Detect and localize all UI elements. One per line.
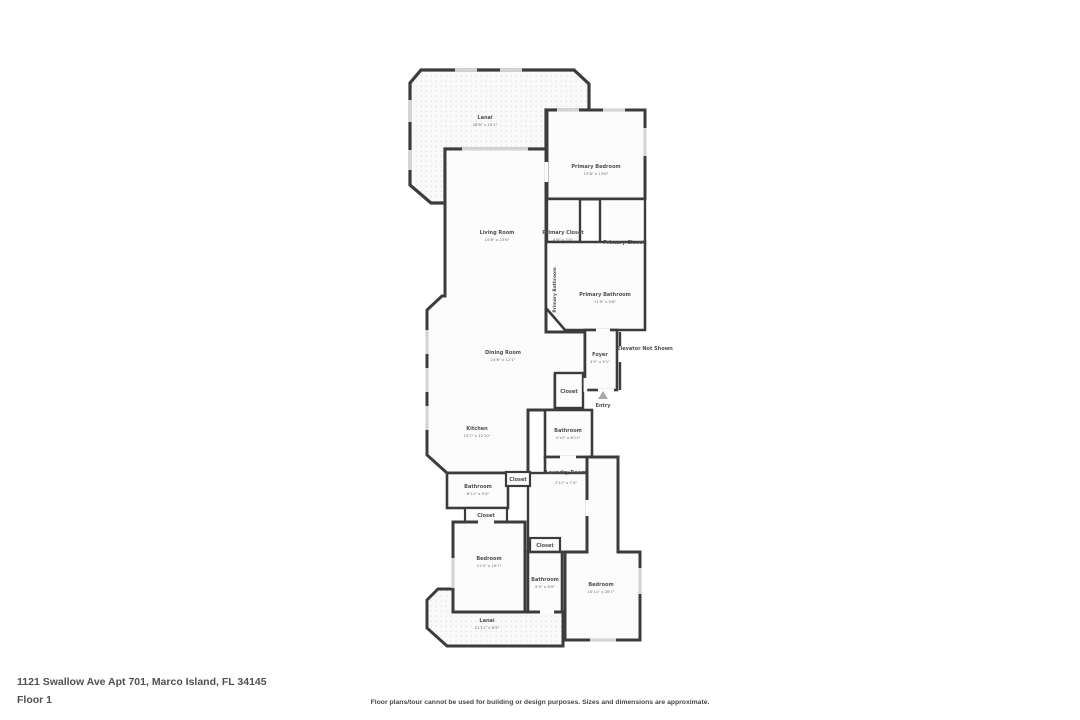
room-primary-closet-right: [600, 199, 645, 243]
dims-laundry: 2'11" x 7'4": [555, 480, 578, 485]
label-entry: Entry: [595, 403, 611, 409]
dims-primary-bedroom: 15'8" x 13'6": [584, 171, 609, 176]
label-lanai-bottom: Lanai: [479, 618, 494, 624]
dims-living-room: 15'8" x 23'6": [485, 237, 510, 242]
label-elevator-note: Elevator Not Shown: [617, 346, 673, 352]
label-bathroom-hall: Bathroom: [554, 428, 582, 434]
label-bathroom-guest: Bathroom: [464, 484, 492, 490]
dims-primary-closet-left: 4'6" x 7'0": [553, 237, 573, 242]
label-closet-c: Closet: [536, 543, 554, 549]
label-primary-closet-left: Primary Closet: [542, 230, 584, 236]
dims-foyer: 4'5" x 9'1": [590, 359, 610, 364]
dims-bathroom-guest: 8'11" x 5'4": [467, 491, 490, 496]
label-primary-bedroom: Primary Bedroom: [571, 164, 620, 170]
label-primary-bathroom-vertical: Primary Bathroom: [552, 267, 558, 313]
disclaimer-text: Floor plans/tour cannot be used for buil…: [0, 699, 1080, 706]
label-bathroom-2: Bathroom: [531, 577, 559, 583]
dims-lanai-bottom: 21'11" x 8'9": [475, 625, 500, 630]
label-foyer: Foyer: [592, 352, 608, 358]
label-lanai-top: Lanai: [477, 115, 492, 121]
dims-dining-room: 24'6" x 12'1": [491, 357, 516, 362]
floor-plan: Lanai 28'8" x 23'1" Primary Bedroom 15'8…: [0, 0, 1080, 720]
label-closet-b: Closet: [477, 513, 495, 519]
label-laundry: Laundry Room: [546, 470, 587, 476]
dims-bathroom-2: 5'0" x 8'9": [535, 584, 555, 589]
label-dining-room: Dining Room: [485, 350, 521, 356]
room-primary-bedroom: [547, 110, 645, 199]
dims-bedroom-1: 11'4" x 19'1": [477, 563, 502, 568]
label-primary-bathroom: Primary Bathroom: [579, 292, 631, 298]
dims-primary-bathroom: 11'9" x 9'8": [594, 299, 617, 304]
label-primary-closet-right: Primary Closet: [603, 240, 645, 246]
label-kitchen: Kitchen: [466, 426, 488, 432]
label-bedroom-2: Bedroom: [588, 582, 613, 588]
floor-plan-page: Lanai 28'8" x 23'1" Primary Bedroom 15'8…: [0, 0, 1080, 720]
label-bedroom-1: Bedroom: [476, 556, 501, 562]
room-primary-bathroom: [546, 242, 645, 330]
property-address: 1121 Swallow Ave Apt 701, Marco Island, …: [17, 676, 267, 688]
dims-lanai-top: 28'8" x 23'1": [473, 122, 498, 127]
label-closet-foyer: Closet: [560, 389, 578, 395]
dims-bedroom-2: 10'11" x 28'7": [587, 589, 614, 594]
dims-bathroom-hall: 4'10" x 6'11": [556, 435, 581, 440]
label-living-room: Living Room: [480, 230, 515, 236]
label-closet-a: Closet: [509, 477, 527, 483]
dims-kitchen: 15'7" x 12'10": [463, 433, 490, 438]
